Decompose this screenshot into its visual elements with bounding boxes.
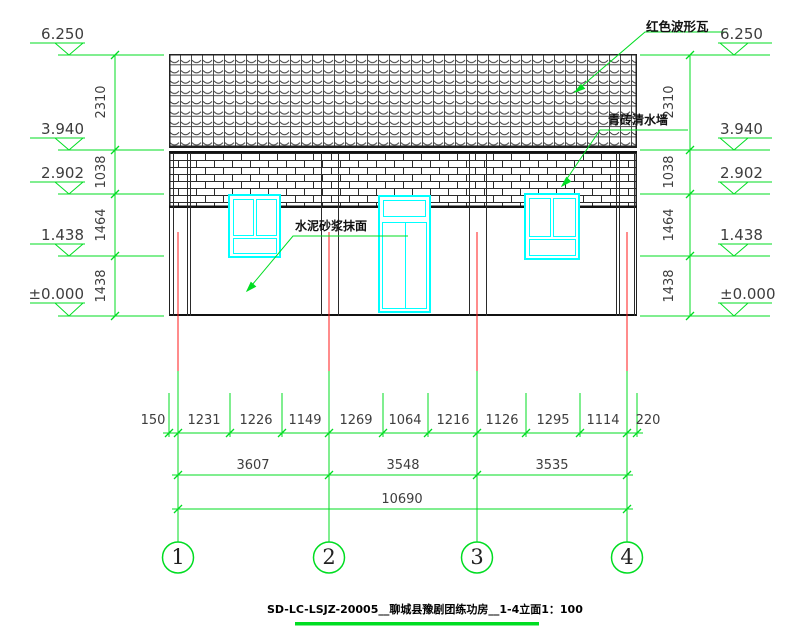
axis-number-1: 1: [162, 542, 194, 573]
window-pane: [553, 198, 576, 237]
vertical-dim-right: 1438: [663, 264, 677, 308]
window-pane: [529, 198, 552, 237]
pilaster-line: [469, 153, 470, 316]
elevation-value-left: 1.438: [20, 227, 84, 244]
dim-total: 10690: [369, 492, 435, 507]
elevation-value-right: 6.250: [720, 26, 796, 43]
pilaster-line: [321, 153, 322, 316]
elevation-value-right: ±0.000: [720, 286, 796, 303]
vertical-dim-right: 1464: [663, 203, 677, 247]
dim-row1: 1114: [579, 413, 627, 428]
dim-row1: 1216: [429, 413, 477, 428]
drawing-title: SD-LC-LSJZ-20005__聊城县豫剧团练功房__1-4立面1：100: [267, 601, 567, 617]
vertical-dim-left: 1464: [95, 203, 109, 247]
pilaster-line: [634, 153, 635, 316]
window-pane: [233, 199, 254, 236]
label-roof-tile: 红色波形瓦: [646, 16, 709, 35]
roof-tile-area: [169, 54, 637, 147]
dim-row1: 220: [624, 413, 672, 428]
dim-row1: 1231: [180, 413, 228, 428]
axis-bubbles: [163, 542, 643, 573]
window-right: [524, 193, 580, 260]
dim-row2: 3607: [223, 458, 283, 473]
elevation-value-left: 3.940: [20, 121, 84, 138]
door-leaves: [382, 222, 427, 309]
dim-row1: 1269: [332, 413, 380, 428]
vertical-dim-right: 1038: [663, 150, 677, 194]
dim-row1: 1064: [381, 413, 429, 428]
title-underline: [295, 622, 539, 626]
pilaster-line: [190, 153, 191, 316]
dim-row1: 1126: [478, 413, 526, 428]
dim-row2: 3535: [522, 458, 582, 473]
axis-number-2: 2: [313, 542, 345, 573]
axis-number-3: 3: [461, 542, 493, 573]
window-left: [228, 194, 281, 258]
elevation-value-left: ±0.000: [20, 286, 84, 303]
pilaster-line: [187, 153, 188, 316]
pilaster-line: [338, 153, 339, 316]
door-mullion: [405, 223, 407, 308]
door-transom: [383, 200, 426, 217]
window-pane: [233, 238, 277, 254]
elevation-drawing: 6.250 3.940 2.902 1.438 ±0.000 6.250 3.9…: [0, 0, 800, 644]
axis-extension-lines: [178, 371, 627, 542]
elevation-value-right: 2.902: [720, 165, 796, 182]
label-brick-wall: 青砖清水墙: [608, 111, 668, 128]
window-pane: [256, 199, 277, 236]
label-plaster: 水泥砂浆抹面: [295, 217, 367, 234]
dim-row1: 1226: [232, 413, 280, 428]
vertical-dim-left: 1438: [95, 264, 109, 308]
entrance-door: [378, 195, 431, 313]
axis-number-4: 4: [611, 542, 643, 573]
pilaster-line: [616, 153, 617, 316]
pilaster-line: [486, 153, 487, 316]
elevation-value-left: 6.250: [20, 26, 84, 43]
vertical-dim-left: 1038: [95, 150, 109, 194]
dim-row2: 3548: [373, 458, 433, 473]
elevation-value-right: 1.438: [720, 227, 796, 244]
dim-row1: 1295: [529, 413, 577, 428]
elevation-value-left: 2.902: [20, 165, 84, 182]
dim-row1: 150: [129, 413, 177, 428]
pilaster-line: [173, 153, 174, 316]
window-pane: [529, 239, 576, 256]
vertical-dim-left: 2310: [95, 80, 109, 124]
dim-row1: 1149: [281, 413, 329, 428]
pilaster-line: [619, 153, 620, 316]
elevation-value-right: 3.940: [720, 121, 796, 138]
